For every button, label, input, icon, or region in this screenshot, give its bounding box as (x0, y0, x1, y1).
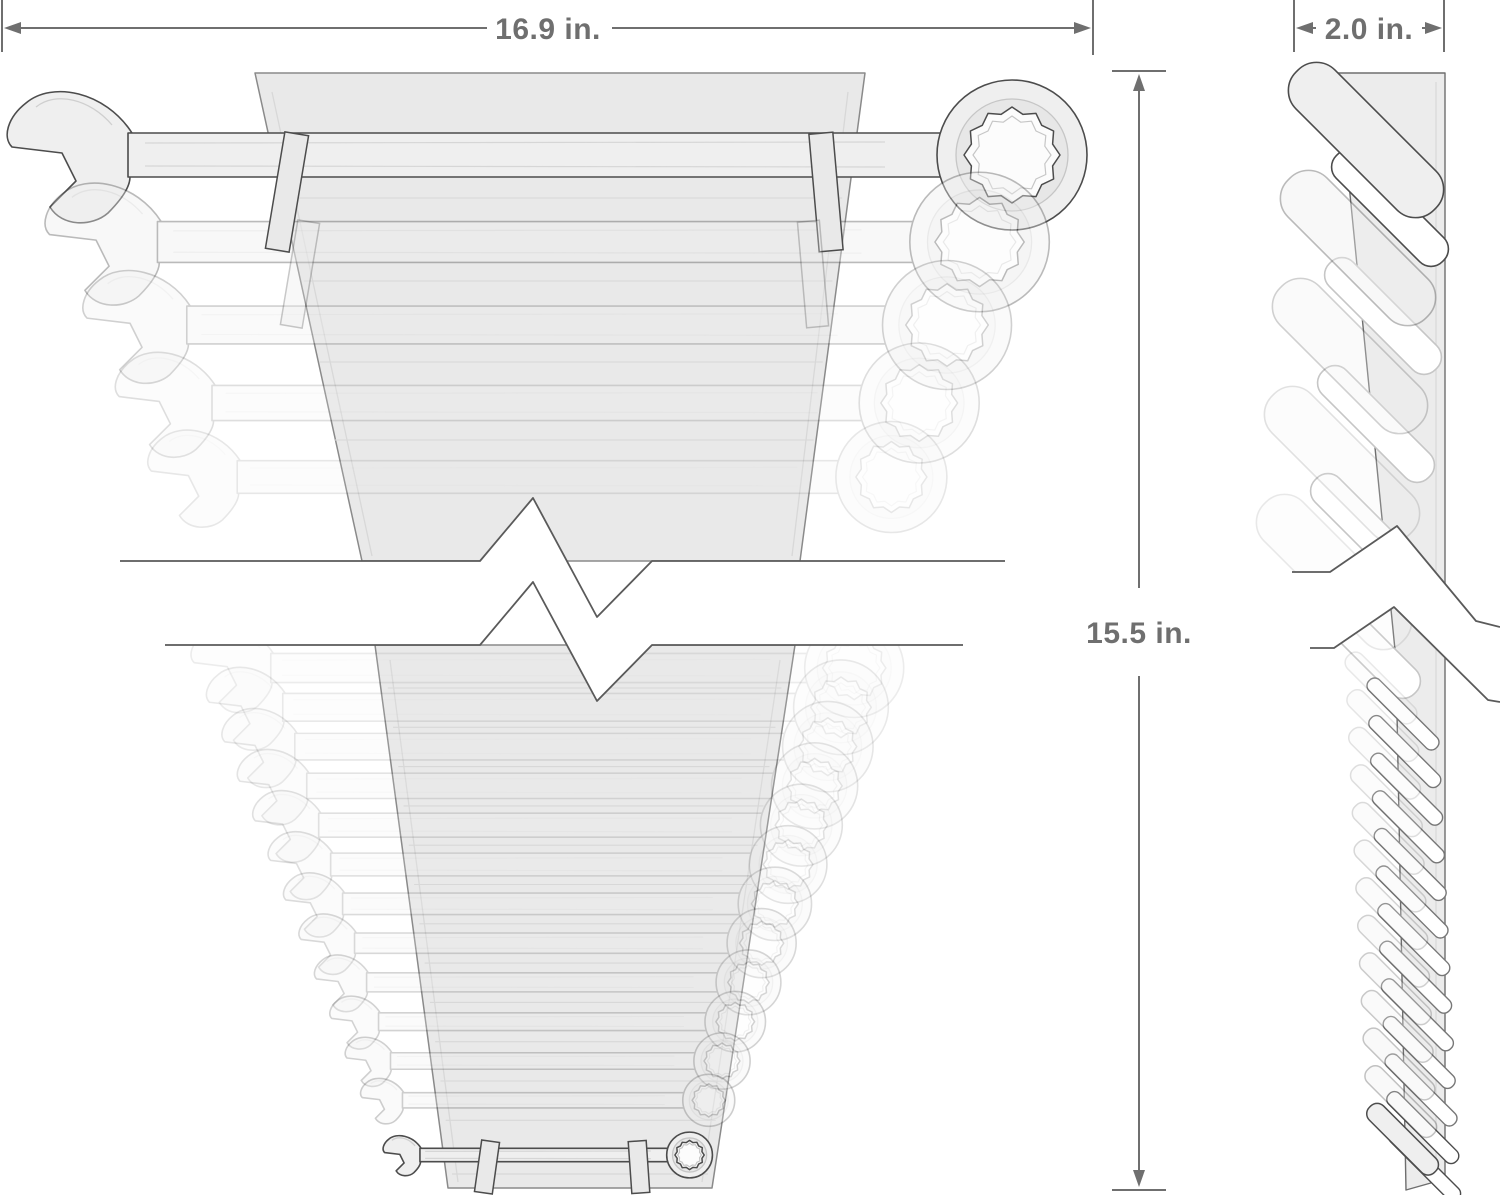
arrow-right-icon (1425, 22, 1442, 34)
height-dimension-label: 15.5 in. (1086, 617, 1192, 650)
arrow-up-icon (1133, 74, 1145, 91)
width-dimension-label: 16.9 in. (495, 13, 601, 46)
retaining-tab (628, 1140, 650, 1193)
depth-dimension-label: 2.0 in. (1325, 13, 1414, 46)
front-view (7, 73, 1087, 1194)
arrow-right-icon (1074, 22, 1091, 34)
arrow-left-icon (4, 22, 21, 34)
arrow-left-icon (1296, 22, 1313, 34)
dimension-width: 16.9 in. (2, 0, 1093, 55)
diagram-canvas: 16.9 in. 2.0 in. 15.5 in. (0, 0, 1500, 1195)
dimension-height: 15.5 in. (1086, 71, 1192, 1190)
product-dimension-diagram: 16.9 in. 2.0 in. 15.5 in. (0, 0, 1500, 1195)
arrow-down-icon (1133, 1170, 1145, 1187)
side-view (1246, 52, 1500, 1195)
dimension-depth: 2.0 in. (1294, 0, 1444, 52)
